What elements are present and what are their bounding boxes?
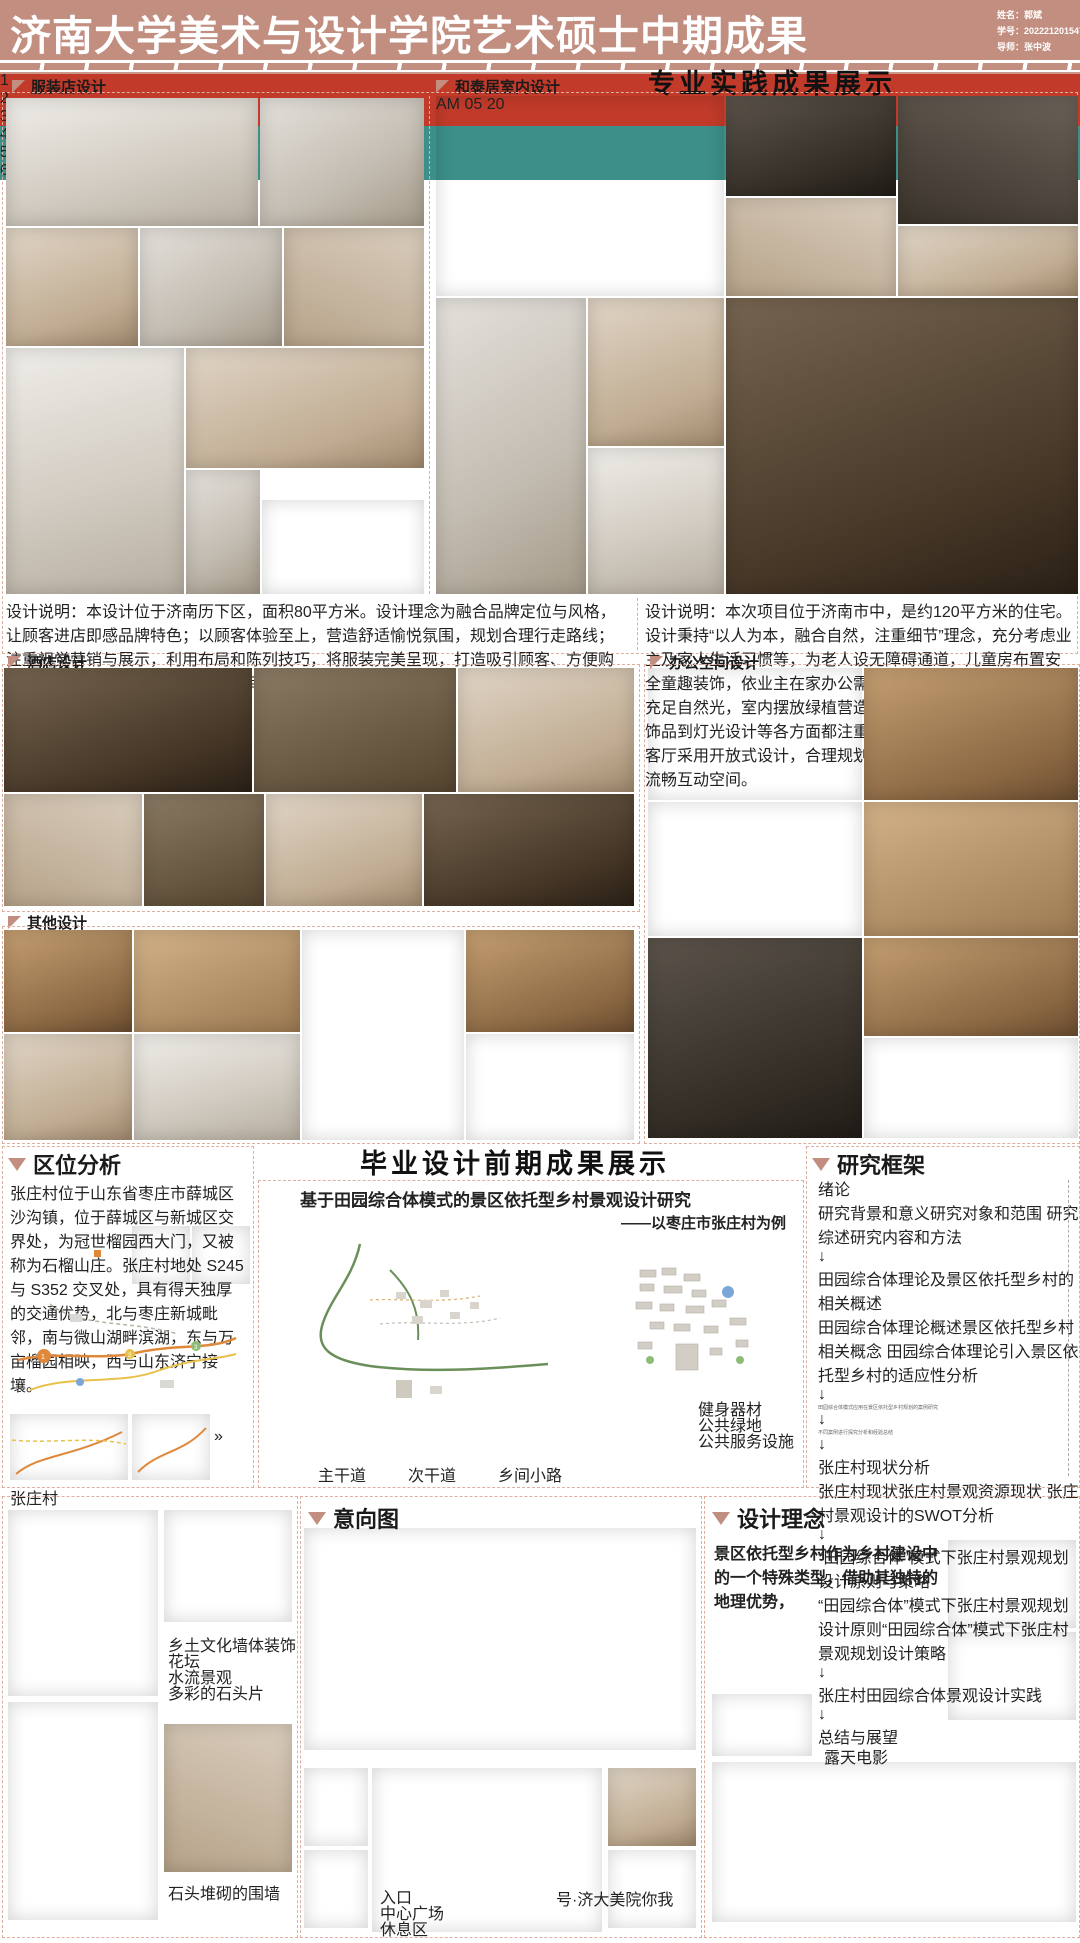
- transport-sketch-svg: 1 2 3: [10, 1290, 242, 1408]
- portfolio-photo: [304, 1850, 368, 1928]
- portfolio-photo: [608, 1768, 696, 1846]
- arrow-down-icon: ↓: [818, 1386, 1080, 1404]
- portfolio-photo: [712, 1694, 812, 1756]
- aerial-photo-left: 张庄村: [10, 1414, 128, 1480]
- route-overlay-svg: [132, 1414, 210, 1480]
- research-title: 基于田园综合体模式的景区依托型乡村景观设计研究: [300, 1186, 691, 1211]
- portfolio-photo: [864, 802, 1078, 936]
- portfolio-photo: [6, 228, 138, 346]
- portfolio-photo: [186, 470, 260, 594]
- portfolio-photo: [164, 1724, 292, 1872]
- portfolio-photo: [424, 794, 634, 906]
- section-concept-header: 设计理念: [712, 1502, 825, 1534]
- portfolio-photo: [164, 1510, 292, 1622]
- portfolio-photo: [6, 348, 184, 594]
- desc-divider: [637, 598, 638, 650]
- portfolio-photo: [186, 348, 424, 468]
- tv-clock-time: 05 20: [464, 96, 504, 113]
- road-map-panel: [300, 1240, 556, 1450]
- flow-text: 田园综合体模式应用在景区依托型乡村规划的案例研究: [818, 1404, 1080, 1411]
- park-render-photo: [304, 1528, 696, 1750]
- portfolio-photo: [648, 668, 862, 800]
- road-map-svg: [300, 1240, 556, 1450]
- portfolio-photo: [726, 198, 896, 296]
- student-tutor: 导师：张中波: [997, 40, 1080, 56]
- portfolio-photo: [466, 1034, 634, 1140]
- flow-node: 田园综合体理论及景区依托型乡村的相关概述: [818, 1266, 1080, 1314]
- building-map-svg: [580, 1240, 802, 1450]
- arrow-chevron-icon: »: [214, 1428, 223, 1446]
- portfolio-photo: [648, 938, 862, 1138]
- portfolio-photo: [4, 1034, 132, 1140]
- floor-plan-drawing: [262, 500, 424, 594]
- triangle-down-icon: [712, 1512, 730, 1525]
- portfolio-photo: [588, 448, 724, 594]
- concept-paragraph: 景区依托型乡村作为乡村建设中的一个特殊类型，借助其独特的地理优势，: [714, 1540, 940, 1612]
- road-legend-item: 乡间小路: [498, 1462, 562, 1486]
- student-id: 学号：202221201547: [997, 24, 1080, 40]
- poster: 济南大学美术与设计学院艺术硕士中期成果 姓名：郭斌 学号：20222120154…: [0, 0, 1080, 1943]
- flow-node: 张庄村现状分析: [818, 1454, 1080, 1478]
- transport-diagram: 1 2 3: [10, 1290, 242, 1408]
- road-legend-item: 次干道: [408, 1462, 456, 1486]
- portfolio-photo: [948, 1632, 1076, 1720]
- portfolio-photo: [4, 668, 252, 792]
- portfolio-photo: [948, 1540, 1076, 1628]
- portfolio-photo: [458, 668, 634, 792]
- aerial-photo-right: [132, 1414, 210, 1480]
- header-rule: [0, 72, 1080, 74]
- photo: [192, 1226, 250, 1284]
- stage-bracket: [1068, 1180, 1069, 1476]
- living-room-photo: AM 05 20: [436, 96, 724, 296]
- terrace-circle-photo: [192, 1226, 250, 1284]
- portfolio-photo: [436, 298, 586, 594]
- portfolio-photo: [284, 228, 424, 346]
- portfolio-photo: [8, 1510, 158, 1696]
- header-ornament-band: [0, 63, 1080, 70]
- flow-subrow: 田园综合体理论概述景区依托型乡村相关概念 田园综合体理论引入景区依托型乡村的适应…: [818, 1314, 1080, 1386]
- tv-am-label: AM: [436, 96, 460, 113]
- portfolio-photo: [134, 930, 300, 1032]
- portfolio-photo: [302, 930, 464, 1140]
- portfolio-photo: [4, 930, 132, 1032]
- portfolio-photo: [466, 930, 634, 1032]
- triangle-down-icon: [812, 1158, 830, 1171]
- arrow-down-icon: ↓: [818, 1436, 1080, 1454]
- portfolio-photo: [864, 938, 1078, 1036]
- arrow-down-icon: ↓: [818, 1411, 1080, 1429]
- road-legend-item: 主干道: [318, 1462, 366, 1486]
- portfolio-photo: [266, 794, 422, 906]
- portfolio-photo: [726, 96, 896, 196]
- route-overlay-svg: [10, 1414, 128, 1480]
- section-location-header: 区位分析: [8, 1148, 121, 1180]
- city-map: [70, 1228, 126, 1284]
- column-divider: [429, 96, 430, 594]
- flow-subrow: 研究背景和意义研究对象和范围 研究综述研究内容和方法: [818, 1200, 1080, 1248]
- arrow-down-icon: ↓: [818, 1248, 1080, 1266]
- tv-screen: AM 05 20: [436, 96, 724, 114]
- road-legend: 主干道 次干道 乡间小路: [318, 1462, 562, 1486]
- portfolio-photo: [134, 1034, 300, 1140]
- portfolio-photo: [864, 1038, 1078, 1138]
- flow-node: 绪论: [818, 1176, 1080, 1200]
- province-map: [10, 1228, 66, 1284]
- portfolio-photo: [140, 228, 282, 346]
- portfolio-photo: [4, 794, 142, 906]
- village-caption: 多彩的石头片: [168, 1680, 264, 1704]
- poster-title: 济南大学美术与设计学院艺术硕士中期成果: [10, 2, 960, 58]
- road-legend-label: 主干道: [318, 1468, 366, 1485]
- svg-text:1: 1: [41, 1354, 45, 1361]
- road-legend-label: 次干道: [408, 1468, 456, 1485]
- flow-text: 不同案例进行探究分析和经验总结: [818, 1429, 1080, 1436]
- open-air-movie-photo: [712, 1762, 1076, 1922]
- section-location-title: 区位分析: [33, 1148, 121, 1180]
- portfolio-photo: [726, 298, 1078, 594]
- portfolio-photo: [898, 96, 1078, 224]
- portfolio-photo: [144, 794, 264, 906]
- portfolio-photo: [260, 98, 424, 226]
- poi-legend-label: 公共服务设施: [698, 1434, 794, 1451]
- portfolio-photo: [608, 1850, 696, 1928]
- portfolio-photo: [6, 98, 258, 226]
- research-subtitle: ——以枣庄市张庄村为例: [470, 1212, 786, 1233]
- graduation-heading: 毕业设计前期成果展示: [360, 1142, 670, 1181]
- site-marker: [94, 1250, 101, 1257]
- portfolio-photo: [254, 668, 456, 792]
- plan-label-item: 休息区: [380, 1916, 428, 1940]
- section-concept-title: 设计理念: [737, 1502, 825, 1534]
- road-legend-label: 乡间小路: [498, 1468, 562, 1485]
- portfolio-photo: [898, 226, 1078, 296]
- portfolio-photo: [8, 1702, 158, 1920]
- triangle-down-icon: [308, 1512, 326, 1525]
- student-info: 姓名：郭斌 学号：202221201547 导师：张中波: [997, 8, 1080, 55]
- plan-label: 休息区: [380, 1922, 428, 1939]
- portfolio-photo: [648, 802, 862, 936]
- photo: [132, 1226, 190, 1284]
- triangle-down-icon: [8, 1158, 26, 1171]
- poi-legend-item: 公共服务设施: [698, 1428, 794, 1452]
- building-map-panel: 健身器材 公共绿地 公共服务设施: [580, 1240, 802, 1450]
- portfolio-photo: [304, 1768, 368, 1846]
- student-name: 姓名：郭斌: [997, 8, 1080, 24]
- portfolio-photo: [864, 668, 1078, 800]
- aerial-circle-photo: [132, 1226, 190, 1284]
- portfolio-photo: [588, 298, 724, 446]
- village-caption-wall: 石头堆砌的围墙: [168, 1880, 280, 1904]
